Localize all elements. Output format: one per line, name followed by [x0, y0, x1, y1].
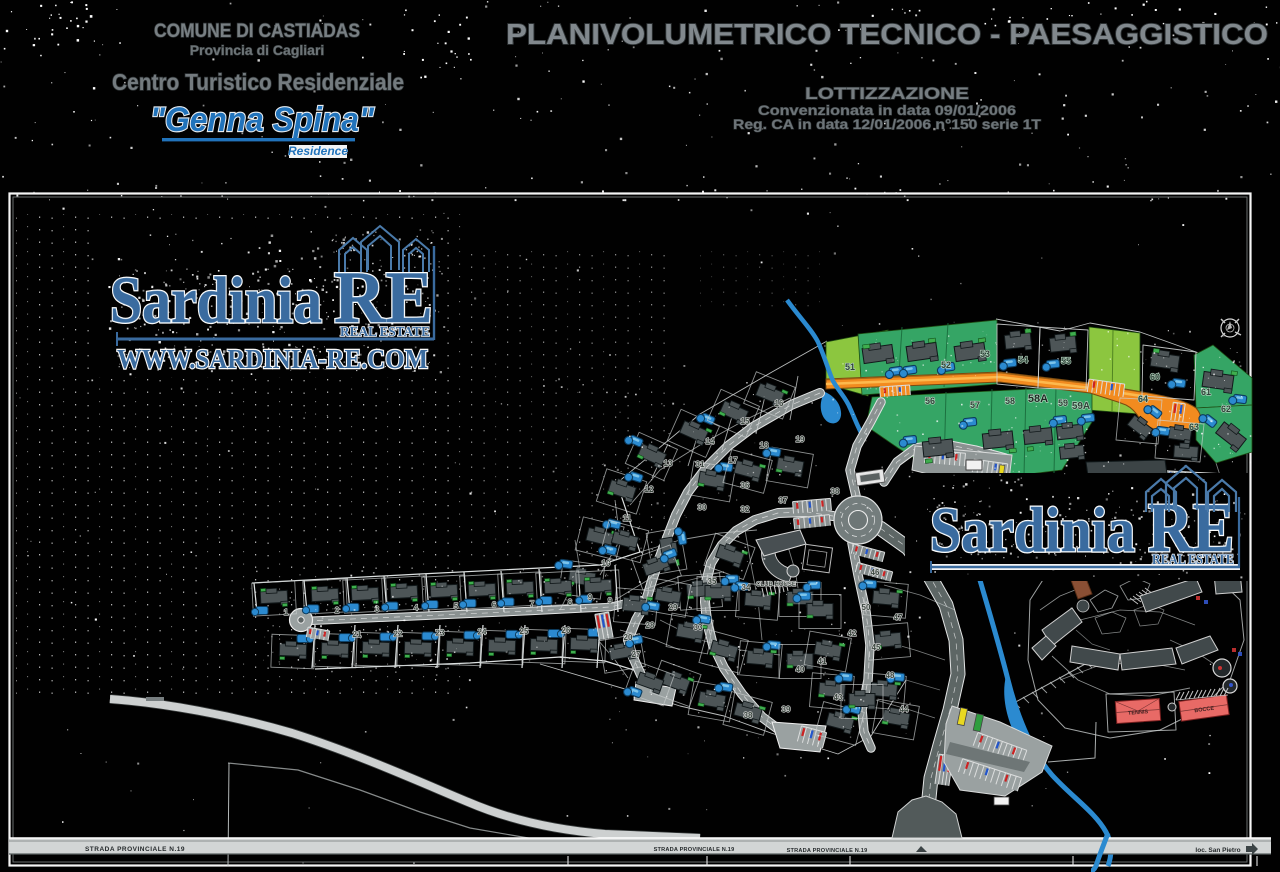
svg-text:29: 29 [669, 603, 678, 612]
svg-text:25: 25 [520, 627, 529, 636]
svg-text:WWW.SARDINIA-RE.COM: WWW.SARDINIA-RE.COM [117, 344, 428, 374]
svg-text:37: 37 [779, 496, 788, 505]
svg-text:50: 50 [862, 603, 871, 612]
svg-text:16: 16 [775, 399, 784, 408]
svg-text:14: 14 [706, 437, 715, 446]
svg-text:44: 44 [900, 705, 909, 714]
svg-text:21: 21 [353, 630, 362, 639]
svg-text:9: 9 [588, 593, 593, 602]
svg-text:26: 26 [562, 626, 571, 635]
svg-text:Residence: Residence [288, 144, 348, 158]
svg-text:5: 5 [454, 602, 459, 611]
svg-text:12: 12 [645, 485, 654, 494]
svg-text:38: 38 [744, 711, 753, 720]
svg-text:28: 28 [646, 621, 655, 630]
svg-text:2: 2 [335, 606, 340, 615]
svg-text:COMUNE DI CASTIADAS: COMUNE DI CASTIADAS [154, 21, 360, 42]
svg-text:9: 9 [608, 597, 613, 606]
svg-text:loc. San Pietro: loc. San Pietro [1195, 847, 1240, 854]
svg-text:51: 51 [845, 362, 855, 372]
svg-text:23: 23 [436, 629, 445, 638]
svg-text:47: 47 [894, 613, 903, 622]
svg-text:REAL ESTATE: REAL ESTATE [1152, 552, 1234, 568]
svg-text:64: 64 [1138, 394, 1148, 404]
svg-text:20: 20 [624, 633, 633, 642]
svg-text:46: 46 [871, 568, 880, 577]
svg-text:8: 8 [568, 598, 573, 607]
svg-text:34: 34 [742, 583, 751, 592]
svg-text:LOTTIZZAZIONE: LOTTIZZAZIONE [805, 84, 969, 103]
svg-text:56: 56 [925, 396, 935, 406]
svg-text:18: 18 [760, 441, 769, 450]
svg-text:41: 41 [818, 657, 827, 666]
svg-text:STRADA PROVINCIALE N.19: STRADA PROVINCIALE N.19 [654, 847, 735, 853]
svg-text:27: 27 [632, 650, 641, 659]
svg-text:32: 32 [741, 505, 750, 514]
svg-text:STRADA PROVINCIALE N.19: STRADA PROVINCIALE N.19 [787, 848, 868, 854]
svg-text:53: 53 [980, 349, 990, 359]
svg-text:62: 62 [1221, 404, 1231, 414]
svg-text:22: 22 [394, 629, 403, 638]
svg-text:39: 39 [782, 705, 791, 714]
svg-text:17: 17 [729, 456, 738, 465]
svg-text:54: 54 [1018, 355, 1028, 365]
svg-text:Centro Turistico Residenziale: Centro Turistico Residenziale [112, 69, 404, 95]
svg-text:"Genna Spina": "Genna Spina" [150, 101, 375, 139]
svg-text:11: 11 [623, 514, 632, 523]
svg-text:58A: 58A [1028, 393, 1048, 405]
svg-text:4: 4 [414, 603, 419, 612]
svg-text:CLUB HOUSE: CLUB HOUSE [756, 582, 796, 588]
svg-text:60: 60 [1150, 372, 1160, 382]
svg-text:59A: 59A [1072, 401, 1090, 412]
svg-text:24: 24 [478, 628, 487, 637]
svg-text:30: 30 [698, 503, 707, 512]
svg-text:REAL ESTATE: REAL ESTATE [340, 325, 430, 340]
svg-text:36: 36 [741, 481, 750, 490]
svg-text:Sardinia: Sardinia [110, 264, 322, 337]
svg-text:15: 15 [741, 417, 750, 426]
svg-text:13: 13 [664, 459, 673, 468]
svg-text:45: 45 [872, 643, 881, 652]
svg-text:6: 6 [492, 601, 497, 610]
svg-text:33: 33 [694, 623, 703, 632]
svg-text:Sardinia: Sardinia [930, 495, 1135, 565]
svg-text:10: 10 [602, 559, 611, 568]
svg-text:58: 58 [1005, 396, 1015, 406]
svg-text:STRADA PROVINCIALE N.19: STRADA PROVINCIALE N.19 [85, 846, 185, 853]
svg-text:59: 59 [1058, 398, 1068, 408]
svg-text:31: 31 [696, 460, 705, 469]
svg-text:Reg. CA in data 12/01/2006 n°1: Reg. CA in data 12/01/2006 n°150 serie 1… [733, 116, 1041, 132]
svg-text:1: 1 [284, 608, 289, 617]
svg-text:7: 7 [530, 599, 535, 608]
svg-text:48: 48 [886, 671, 895, 680]
svg-text:35: 35 [708, 577, 717, 586]
svg-text:38: 38 [831, 487, 840, 496]
svg-text:PLANIVOLUMETRICO TECNICO - PAE: PLANIVOLUMETRICO TECNICO - PAESAGGISTICO [506, 19, 1268, 51]
svg-text:57: 57 [970, 400, 980, 410]
svg-text:Provincia di Cagliari: Provincia di Cagliari [190, 42, 325, 58]
svg-text:19: 19 [796, 435, 805, 444]
svg-text:43: 43 [834, 693, 843, 702]
svg-text:40: 40 [796, 665, 805, 674]
svg-text:52: 52 [941, 360, 951, 370]
svg-text:55: 55 [1061, 356, 1071, 366]
